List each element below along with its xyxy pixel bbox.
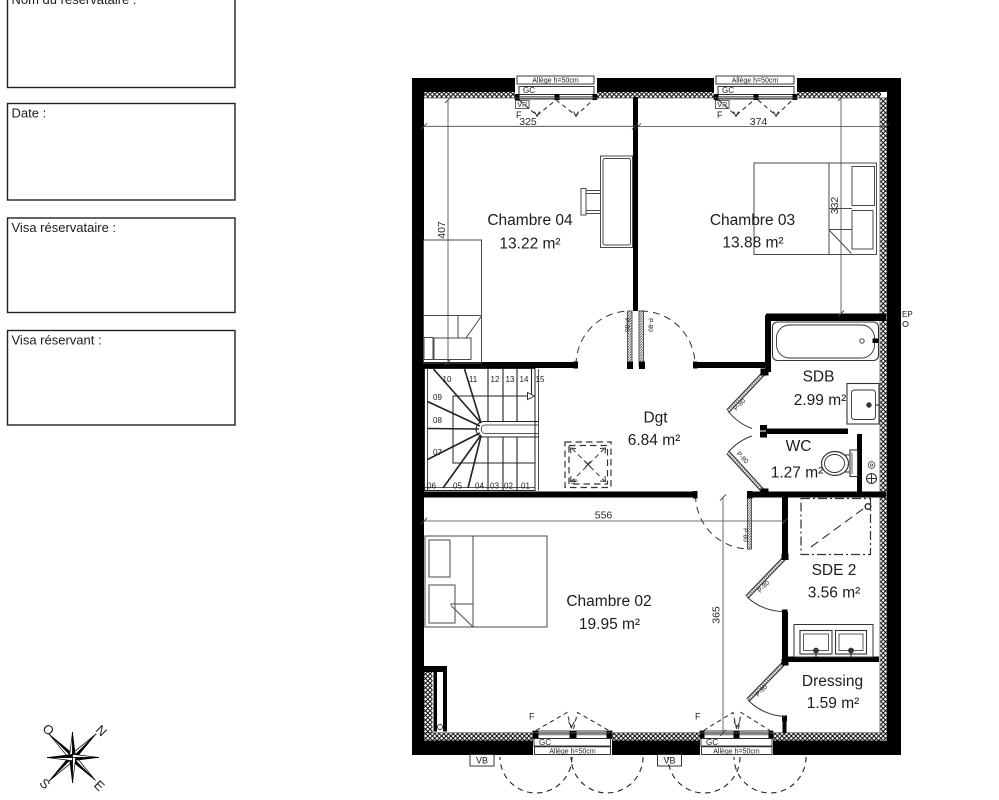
svg-text:05: 05 (453, 482, 462, 491)
svg-text:E: E (91, 777, 108, 794)
svg-text:09: 09 (433, 393, 442, 402)
svg-text:Chambre 04: Chambre 04 (487, 212, 573, 229)
svg-text:13.22 m²: 13.22 m² (499, 236, 560, 253)
svg-text:13: 13 (506, 375, 515, 384)
svg-text:11: 11 (469, 375, 478, 384)
svg-text:Allège h=50cm: Allège h=50cm (549, 748, 596, 755)
svg-text:1.59 m²: 1.59 m² (807, 695, 860, 712)
svg-text:F: F (695, 712, 701, 722)
svg-text:10: 10 (443, 375, 452, 384)
svg-text:374: 374 (750, 116, 768, 128)
svg-text:Visa réservant :: Visa réservant : (12, 333, 102, 348)
svg-text:GC: GC (523, 86, 535, 95)
svg-text:15: 15 (536, 375, 545, 384)
svg-text:P-80: P-80 (755, 683, 770, 698)
svg-text:VB: VB (476, 756, 488, 766)
svg-text:19.95 m²: 19.95 m² (579, 616, 640, 633)
svg-text:Chambre 02: Chambre 02 (566, 593, 651, 610)
svg-text:P-80: P-80 (733, 397, 748, 412)
svg-text:12: 12 (491, 375, 500, 384)
svg-text:SDE 2: SDE 2 (812, 562, 857, 579)
svg-text:F: F (717, 110, 723, 120)
svg-text:P-80: P-80 (623, 318, 630, 332)
svg-text:VR: VR (717, 102, 727, 109)
svg-text:1.27 m²: 1.27 m² (771, 465, 824, 482)
svg-text:01: 01 (521, 482, 530, 491)
svg-text:332: 332 (829, 197, 841, 215)
svg-text:Date :: Date : (12, 106, 47, 121)
svg-text:02: 02 (504, 482, 513, 491)
svg-text:Visa réservataire :: Visa réservataire : (12, 220, 117, 235)
svg-text:6.84 m²: 6.84 m² (628, 432, 681, 449)
svg-text:365: 365 (711, 606, 723, 624)
svg-text:Dgt: Dgt (643, 410, 668, 427)
svg-text:3.56 m²: 3.56 m² (808, 585, 861, 602)
svg-text:GC: GC (706, 738, 718, 747)
svg-text:GC: GC (539, 738, 551, 747)
svg-text:VB: VB (663, 756, 675, 766)
svg-text:Allège h=50cm: Allège h=50cm (532, 77, 579, 84)
svg-text:Nom du réservataire :: Nom du réservataire : (12, 0, 137, 7)
svg-text:325: 325 (519, 116, 537, 128)
svg-text:O: O (39, 721, 57, 739)
svg-text:2.99 m²: 2.99 m² (794, 392, 847, 409)
svg-text:07: 07 (433, 448, 442, 457)
svg-text:EP: EP (902, 310, 913, 319)
svg-text:Allège h=50cm: Allège h=50cm (713, 748, 760, 755)
svg-text:WC: WC (786, 438, 812, 455)
svg-text:S: S (36, 775, 53, 792)
svg-text:04: 04 (475, 482, 484, 491)
svg-text:GC: GC (722, 86, 734, 95)
svg-text:13.88 m²: 13.88 m² (722, 235, 783, 252)
svg-text:Allège h=50cm: Allège h=50cm (732, 77, 779, 84)
svg-text:03: 03 (490, 482, 499, 491)
svg-text:N: N (93, 722, 110, 739)
svg-text:P-80: P-80 (742, 528, 749, 542)
svg-text:08: 08 (433, 416, 442, 425)
svg-text:556: 556 (595, 510, 613, 522)
svg-text:Chambre 03: Chambre 03 (710, 212, 795, 229)
svg-text:06: 06 (427, 482, 436, 491)
svg-text:SDB: SDB (803, 369, 835, 386)
svg-text:P-80: P-80 (647, 318, 654, 332)
svg-text:407: 407 (436, 221, 448, 239)
svg-text:F: F (529, 712, 535, 722)
svg-text:Dressing: Dressing (802, 673, 863, 690)
svg-text:2P: 2P (571, 480, 578, 486)
svg-text:14: 14 (520, 375, 529, 384)
